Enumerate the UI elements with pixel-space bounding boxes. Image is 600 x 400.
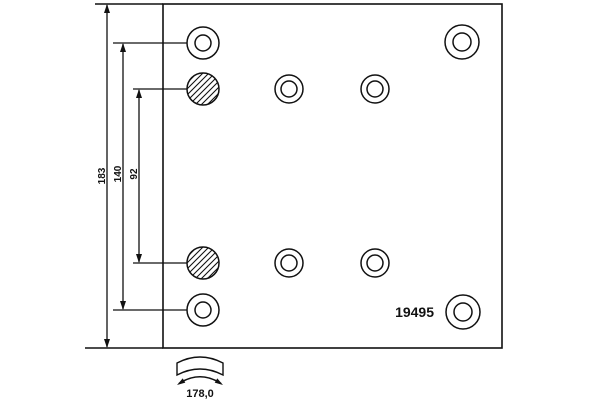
hole-hatched-upper bbox=[187, 73, 219, 105]
arrow-down-icon bbox=[104, 339, 110, 348]
cross-section-detail: 178,0 bbox=[177, 357, 223, 400]
hole-ring-mid-bottom-2 bbox=[361, 249, 389, 277]
hole-ring-bottom-left bbox=[187, 294, 219, 326]
hole-ring-bottom-right bbox=[446, 295, 480, 329]
arrow-up-icon bbox=[120, 43, 126, 52]
dimension-label-lining-width: 178,0 bbox=[186, 388, 214, 400]
dimension-label-inner-hole-spacing: 92 bbox=[129, 168, 140, 180]
arrow-left-icon bbox=[177, 378, 185, 385]
hole-ring-mid-top-2 bbox=[361, 75, 389, 103]
technical-drawing-canvas: 183 140 92 bbox=[0, 0, 600, 400]
hole-hatched-lower bbox=[187, 247, 219, 279]
brake-lining-drawing: 183 140 92 bbox=[0, 0, 600, 400]
hole-ring-top-left bbox=[187, 27, 219, 59]
dimension-183: 183 bbox=[97, 4, 110, 348]
arrow-up-icon bbox=[136, 89, 142, 98]
dimension-label-outer-hole-spacing: 140 bbox=[113, 165, 124, 182]
arrow-down-icon bbox=[136, 254, 142, 263]
lining-section-band bbox=[177, 357, 223, 375]
arrow-up-icon bbox=[104, 4, 110, 13]
width-dimension-arc bbox=[179, 377, 221, 384]
hole-ring-mid-top-1 bbox=[275, 75, 303, 103]
hole-ring-top-right bbox=[445, 25, 479, 59]
part-number: 19495 bbox=[395, 304, 434, 320]
arrow-right-icon bbox=[215, 378, 223, 385]
hole-ring-mid-bottom-1 bbox=[275, 249, 303, 277]
arrow-down-icon bbox=[120, 301, 126, 310]
dimension-label-overall-height: 183 bbox=[97, 167, 108, 184]
